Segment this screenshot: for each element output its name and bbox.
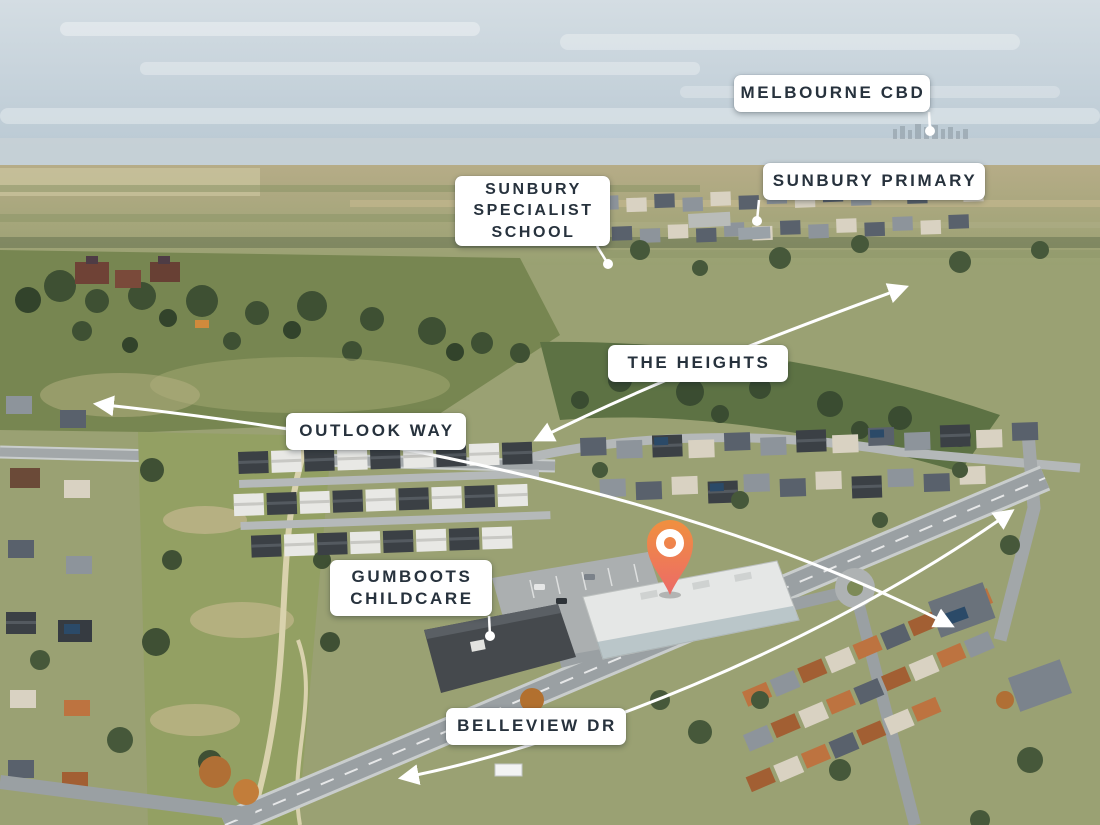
label-sunbury-specialist-school: SUNBURY SPECIALIST SCHOOL — [455, 176, 610, 246]
label-outlook-way: OUTLOOK WAY — [286, 413, 466, 450]
aerial-locality-map: MELBOURNE CBDSUNBURY PRIMARYSUNBURY SPEC… — [0, 0, 1100, 825]
label-belleview-dr: BELLEVIEW DR — [446, 708, 626, 745]
label-melbourne-cbd: MELBOURNE CBD — [734, 75, 930, 112]
label-sunbury-primary: SUNBURY PRIMARY — [763, 163, 985, 200]
label-gumboots-childcare: GUMBOOTS CHILDCARE — [330, 560, 492, 616]
label-the-heights: THE HEIGHTS — [608, 345, 788, 382]
labels-layer: MELBOURNE CBDSUNBURY PRIMARYSUNBURY SPEC… — [0, 0, 1100, 825]
